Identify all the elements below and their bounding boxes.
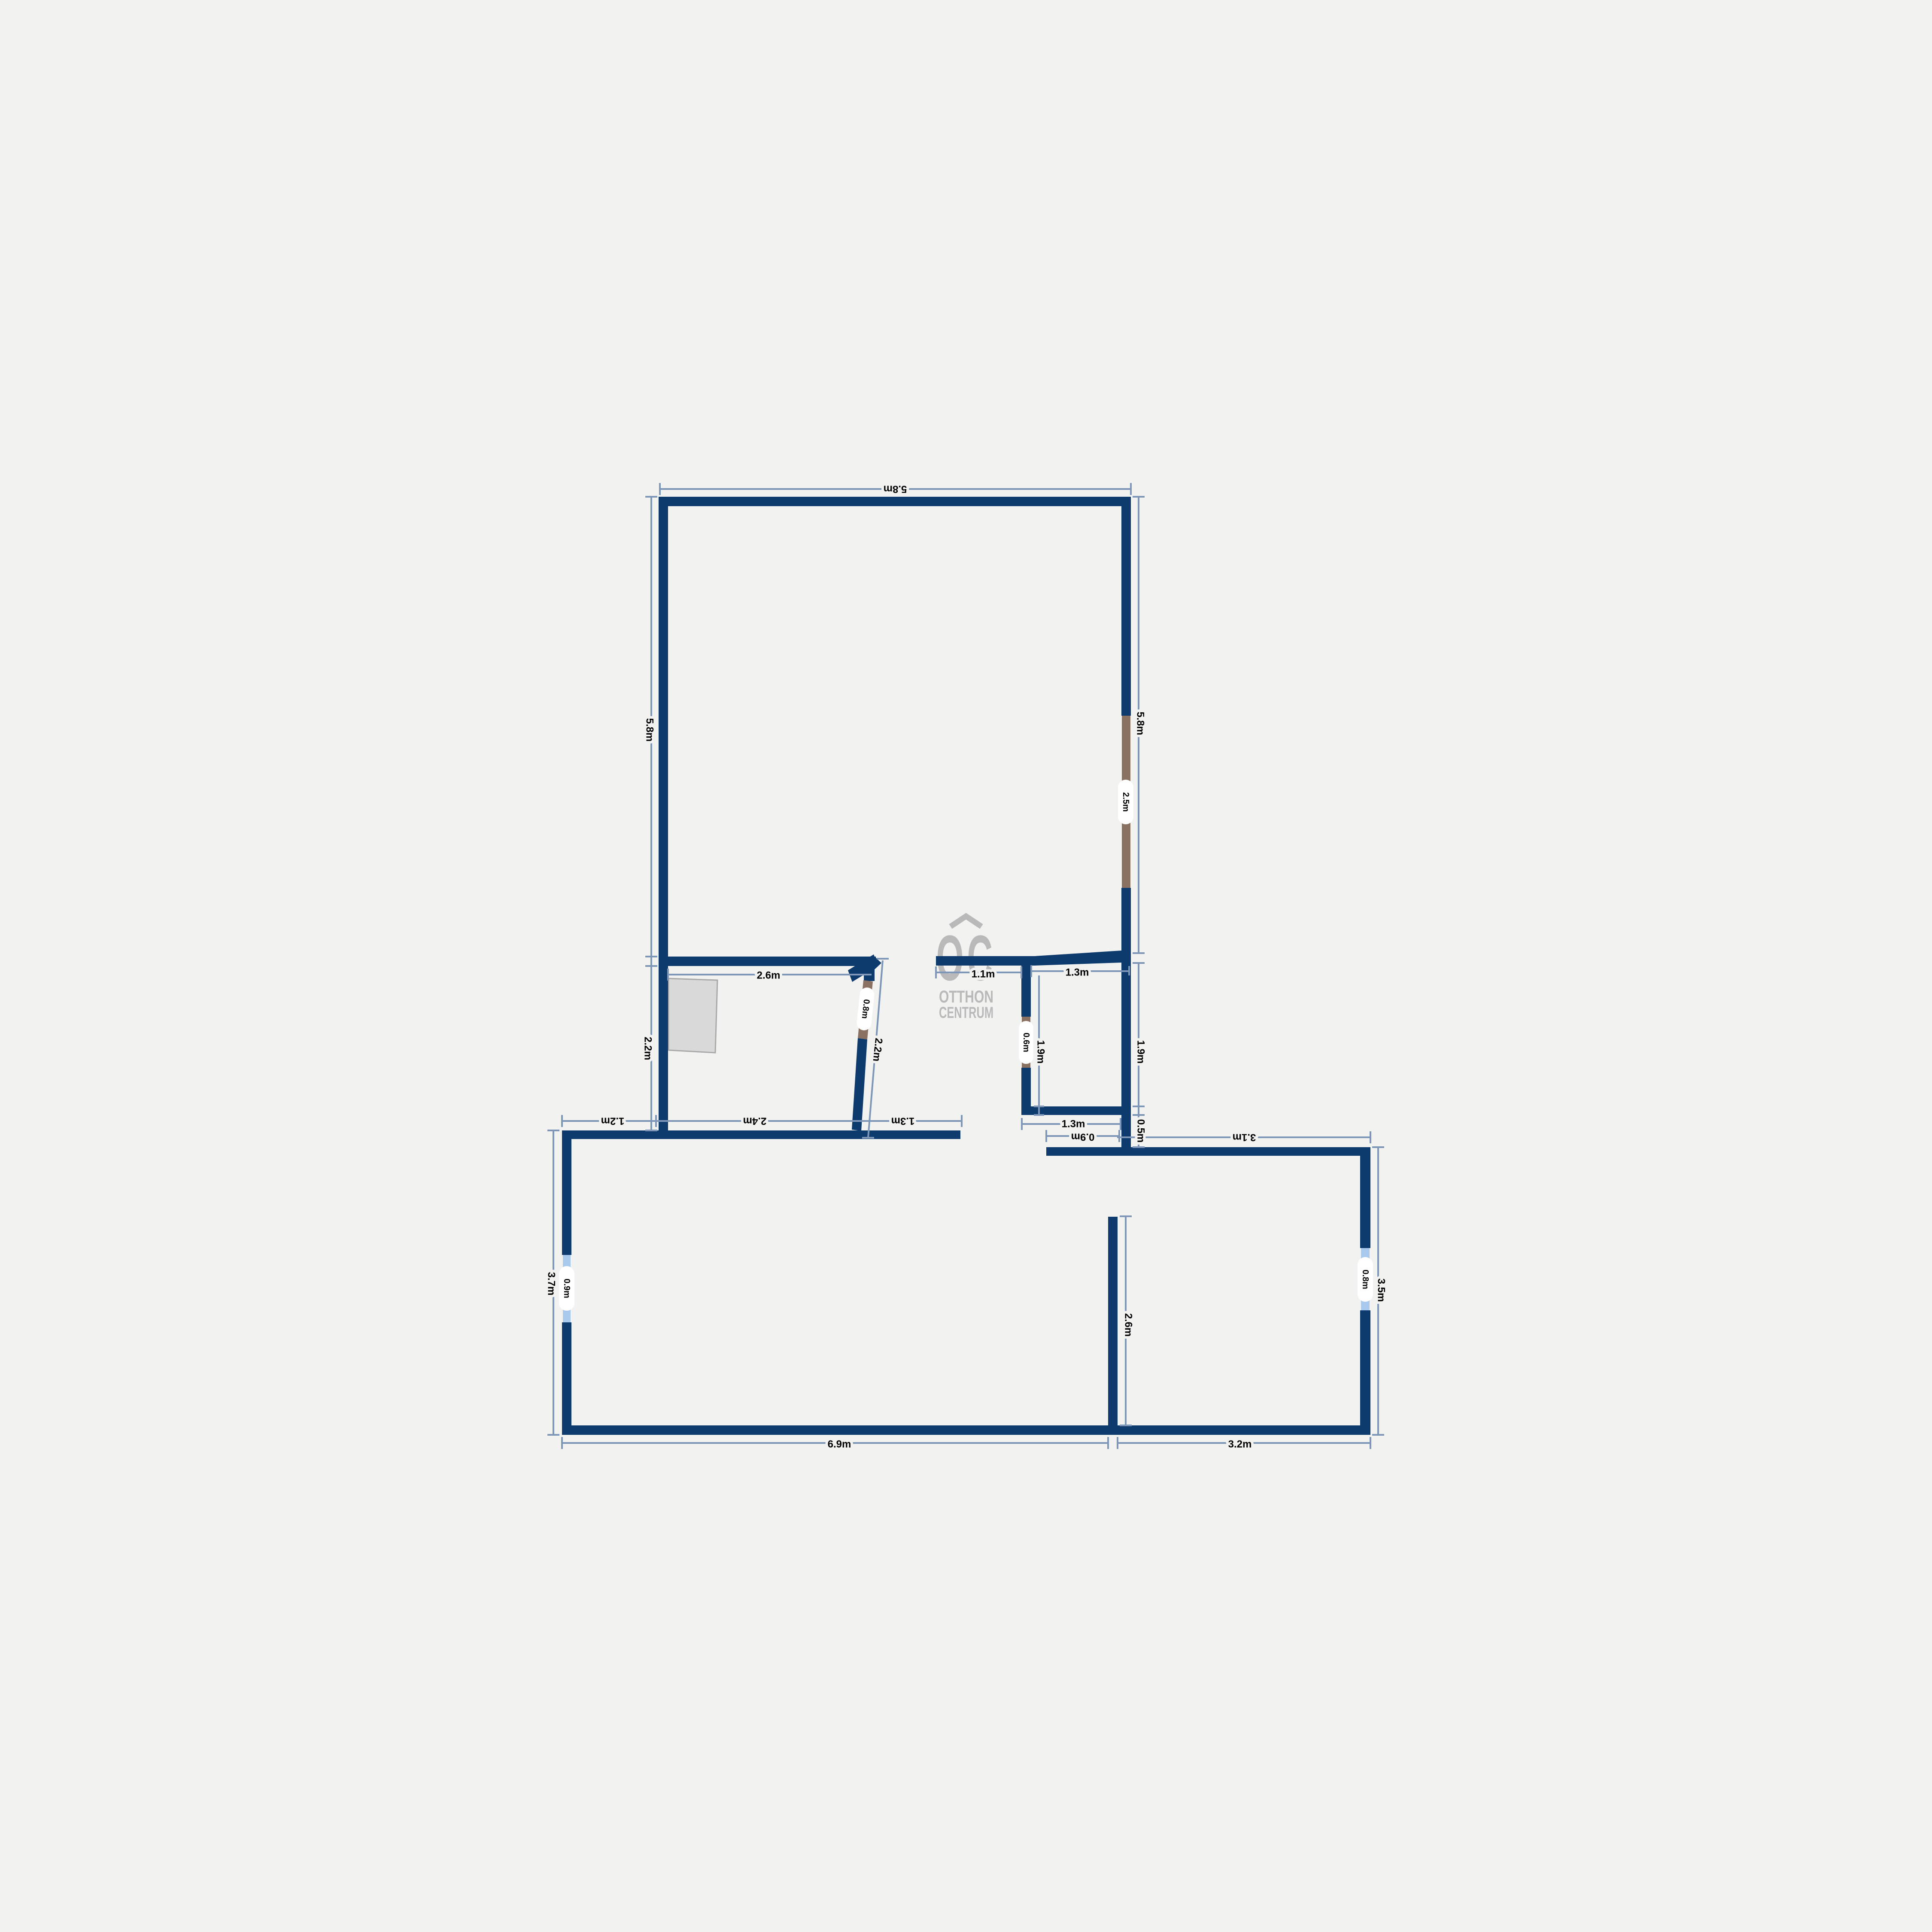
label-bottom-right-width: 3.2m <box>1228 1439 1252 1450</box>
wall-top <box>659 497 1131 506</box>
wall-living-top <box>1046 1147 1370 1156</box>
wall-right-middle <box>1121 888 1131 1156</box>
wall-bottom <box>562 1425 1370 1435</box>
label-upper-left-lower-height: 2.2m <box>642 1037 654 1060</box>
wall-right-upper <box>1121 497 1131 716</box>
label-wall-offset-height: 0.5m <box>1135 1119 1147 1143</box>
label-passage-width: 0.9m <box>1071 1131 1095 1143</box>
label-living-top-width: 3.1m <box>1233 1132 1256 1143</box>
pill-right-door: 2.5m <box>1118 780 1133 824</box>
wall-closet-room-top <box>668 957 876 966</box>
label-hall-segment-middle: 2.4m <box>743 1115 767 1127</box>
label-diagonal-wall-length: 2.2m <box>871 1037 885 1062</box>
label-hall-segment-right: 1.3m <box>891 1115 915 1127</box>
label-lower-right-height: 3.5m <box>1376 1279 1387 1302</box>
logo-name-line2: CENTRUM <box>939 1004 993 1021</box>
label-bottom-left-width: 6.9m <box>828 1439 851 1450</box>
pill-left-window-label: 0.9m <box>562 1279 571 1298</box>
wall-bath-bottom <box>1021 1106 1130 1115</box>
label-upper-left-height: 5.8m <box>644 718 656 742</box>
pill-bath-door-label: 0.6m <box>1021 1033 1031 1052</box>
wall-hall-top <box>562 1130 960 1139</box>
pill-right-window: 0.8m <box>1358 1257 1373 1302</box>
wall-bath-left-lower <box>1021 1068 1031 1106</box>
label-bath-width: 1.3m <box>1062 1118 1085 1130</box>
pill-bath-door: 0.6m <box>1019 1021 1033 1064</box>
label-entry-right-width: 1.3m <box>1066 967 1089 978</box>
wall-bath-left-upper <box>1021 966 1031 1017</box>
label-hall-segment-left: 1.2m <box>601 1115 625 1127</box>
floor-plan-canvas: OC OTTHON CENTRUM <box>0 0 1932 1932</box>
wall-left-lower-b <box>562 1322 571 1435</box>
label-interior-wall-height: 2.6m <box>1123 1313 1134 1337</box>
label-lower-left-height: 3.7m <box>546 1272 557 1296</box>
wall-right-lower-a <box>1360 1147 1370 1248</box>
wall-right-lower-b <box>1360 1310 1370 1435</box>
label-closet-wall-width: 2.6m <box>757 970 781 981</box>
pill-right-window-label: 0.8m <box>1361 1270 1370 1289</box>
label-bath-right-height: 1.9m <box>1135 1040 1147 1064</box>
wall-left-upper <box>659 497 668 1139</box>
wall-left-lower-a <box>562 1130 571 1255</box>
wall-interior <box>1108 1217 1118 1425</box>
pill-right-door-label: 2.5m <box>1121 792 1130 812</box>
floor-plan-page: OC OTTHON CENTRUM <box>0 0 1932 1932</box>
label-entry-left-width: 1.1m <box>972 969 995 980</box>
label-bath-left-height: 1.9m <box>1035 1040 1047 1064</box>
label-top-width: 5.8m <box>884 483 907 495</box>
label-upper-right-height: 5.8m <box>1135 712 1146 735</box>
closet-fixture <box>668 978 717 1053</box>
pill-left-window: 0.9m <box>559 1266 574 1311</box>
